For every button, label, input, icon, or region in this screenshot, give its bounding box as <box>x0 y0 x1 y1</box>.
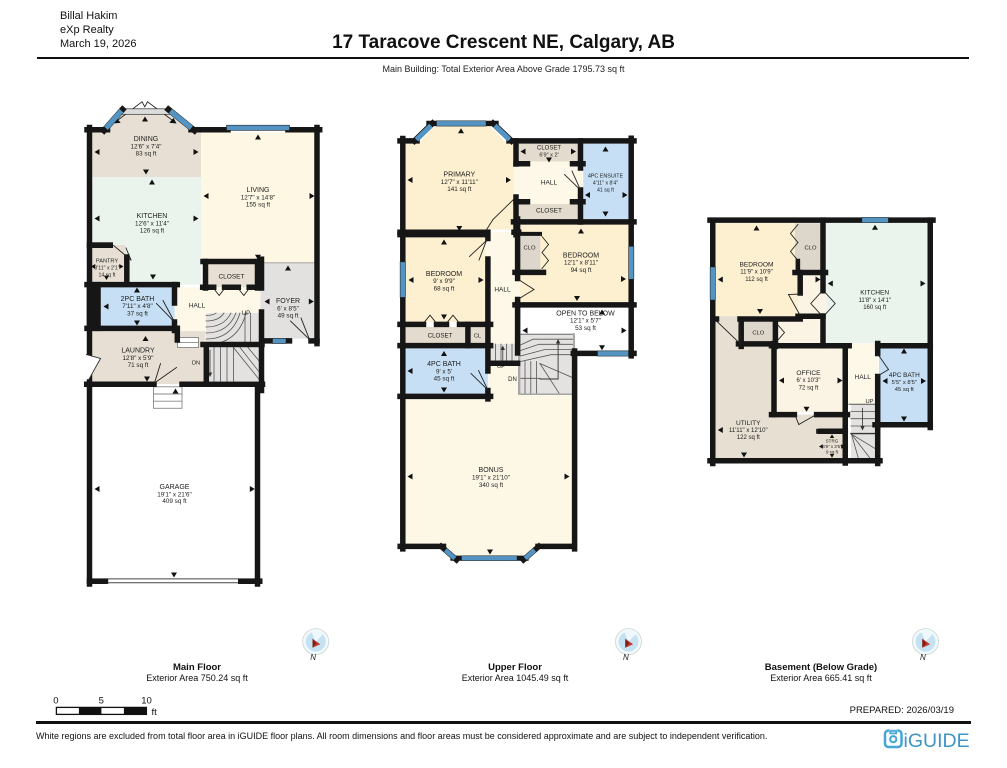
svg-text:12'8" x 5'9": 12'8" x 5'9" <box>122 355 153 362</box>
svg-text:iGUIDE: iGUIDE <box>904 730 970 752</box>
svg-text:LIVING: LIVING <box>247 187 270 194</box>
svg-text:83 sq ft: 83 sq ft <box>136 150 157 157</box>
svg-text:6'9" x 2': 6'9" x 2' <box>539 152 558 158</box>
svg-text:340 sq ft: 340 sq ft <box>479 482 503 489</box>
svg-text:ft: ft <box>152 707 158 718</box>
svg-text:BEDROOM: BEDROOM <box>426 271 462 278</box>
svg-text:GARAGE: GARAGE <box>160 484 190 491</box>
svg-text:141 sq ft: 141 sq ft <box>447 186 471 193</box>
svg-text:DN: DN <box>192 361 200 367</box>
svg-text:STRG: STRG <box>826 438 839 443</box>
svg-text:LAUNDRY: LAUNDRY <box>121 348 155 355</box>
svg-text:HALL: HALL <box>189 303 206 310</box>
svg-text:11'11" x 12'10": 11'11" x 12'10" <box>729 428 768 434</box>
svg-text:UP: UP <box>865 399 873 405</box>
svg-text:PANTRY: PANTRY <box>96 259 118 265</box>
svg-text:BONUS: BONUS <box>479 467 504 474</box>
svg-text:112 sq ft: 112 sq ft <box>745 277 768 283</box>
svg-text:5: 5 <box>99 696 104 707</box>
svg-text:0: 0 <box>53 696 58 707</box>
svg-text:6' x 8'5": 6' x 8'5" <box>277 305 299 312</box>
svg-text:7'11" x 4'8": 7'11" x 4'8" <box>122 303 153 310</box>
svg-text:PRIMARY: PRIMARY <box>443 172 475 179</box>
svg-text:BEDROOM: BEDROOM <box>563 252 599 259</box>
svg-text:N: N <box>623 653 629 662</box>
svg-text:BEDROOM: BEDROOM <box>739 261 773 268</box>
svg-text:6' x 10'3": 6' x 10'3" <box>796 378 820 384</box>
svg-text:CLOSET: CLOSET <box>428 333 453 340</box>
svg-text:CLOSET: CLOSET <box>218 274 244 281</box>
svg-text:126 sq ft: 126 sq ft <box>140 227 164 234</box>
svg-text:12'1" x 8'11": 12'1" x 8'11" <box>564 260 598 267</box>
svg-text:UP: UP <box>497 364 505 370</box>
svg-text:CLO: CLO <box>805 246 817 252</box>
svg-text:N: N <box>920 653 926 662</box>
svg-text:CLO: CLO <box>752 330 764 336</box>
svg-text:12'6" x 11'4": 12'6" x 11'4" <box>135 220 169 227</box>
svg-text:CLOSET: CLOSET <box>536 208 562 215</box>
svg-text:HALL: HALL <box>541 180 558 187</box>
svg-text:3'11" x 2'1": 3'11" x 2'1" <box>94 266 119 272</box>
svg-text:45 sq ft: 45 sq ft <box>895 387 914 393</box>
svg-text:KITCHEN: KITCHEN <box>137 213 168 220</box>
svg-text:12'7" x 11'11": 12'7" x 11'11" <box>441 179 478 186</box>
svg-text:53 sq ft: 53 sq ft <box>575 325 596 332</box>
svg-text:5'5" x 8'5": 5'5" x 8'5" <box>892 380 917 386</box>
svg-text:160 sq ft: 160 sq ft <box>863 305 886 311</box>
svg-text:UP: UP <box>242 311 250 317</box>
svg-text:122 sq ft: 122 sq ft <box>737 435 760 441</box>
svg-text:CLO: CLO <box>524 246 536 252</box>
svg-text:4PC BATH: 4PC BATH <box>889 372 920 379</box>
svg-text:68 sq ft: 68 sq ft <box>434 285 455 292</box>
svg-text:45 sq ft: 45 sq ft <box>434 376 455 383</box>
svg-text:4PC BATH: 4PC BATH <box>427 361 461 368</box>
svg-text:CL: CL <box>474 334 481 340</box>
svg-text:N: N <box>310 653 316 662</box>
svg-text:HALL: HALL <box>494 287 511 294</box>
svg-text:41 sq ft: 41 sq ft <box>597 188 615 194</box>
svg-text:71 sq ft: 71 sq ft <box>128 362 149 369</box>
svg-text:12'6" x 7'4": 12'6" x 7'4" <box>130 143 161 150</box>
svg-text:UTILITY: UTILITY <box>736 420 761 427</box>
svg-text:10: 10 <box>141 696 152 707</box>
svg-text:9' x 9'9": 9' x 9'9" <box>433 278 455 285</box>
svg-text:4'11" x 8'4": 4'11" x 8'4" <box>593 181 618 187</box>
svg-text:37 sq ft: 37 sq ft <box>127 310 148 317</box>
svg-text:DN: DN <box>508 377 517 383</box>
svg-text:19'1" x 21'10": 19'1" x 21'10" <box>472 475 510 482</box>
svg-text:4PC ENSUITE: 4PC ENSUITE <box>588 174 624 180</box>
svg-text:49 sq ft: 49 sq ft <box>278 313 299 320</box>
svg-text:94 sq ft: 94 sq ft <box>571 267 592 274</box>
svg-text:OFFICE: OFFICE <box>796 370 821 377</box>
svg-text:OPEN TO BELOW: OPEN TO BELOW <box>556 310 615 317</box>
svg-text:409 sq ft: 409 sq ft <box>162 498 186 505</box>
svg-text:FOYER: FOYER <box>276 298 300 305</box>
svg-text:12'1" x 5'7": 12'1" x 5'7" <box>570 318 601 325</box>
svg-text:KITCHEN: KITCHEN <box>860 290 889 297</box>
svg-text:12'7" x 14'8": 12'7" x 14'8" <box>241 194 276 201</box>
svg-text:CLOSET: CLOSET <box>537 146 561 152</box>
svg-text:9' x 5': 9' x 5' <box>436 368 452 375</box>
svg-text:155 sq ft: 155 sq ft <box>246 201 270 208</box>
svg-text:HALL: HALL <box>855 374 871 381</box>
svg-text:11'9" x 10'9": 11'9" x 10'9" <box>740 270 772 276</box>
svg-text:11'8" x 14'1": 11'8" x 14'1" <box>858 298 890 304</box>
svg-text:2PC BATH: 2PC BATH <box>121 296 155 303</box>
svg-text:4'9" x 3'5": 4'9" x 3'5" <box>822 444 842 449</box>
svg-text:DINING: DINING <box>134 136 159 143</box>
svg-text:72 sq ft: 72 sq ft <box>799 385 819 391</box>
svg-text:9 sq ft: 9 sq ft <box>826 450 839 455</box>
